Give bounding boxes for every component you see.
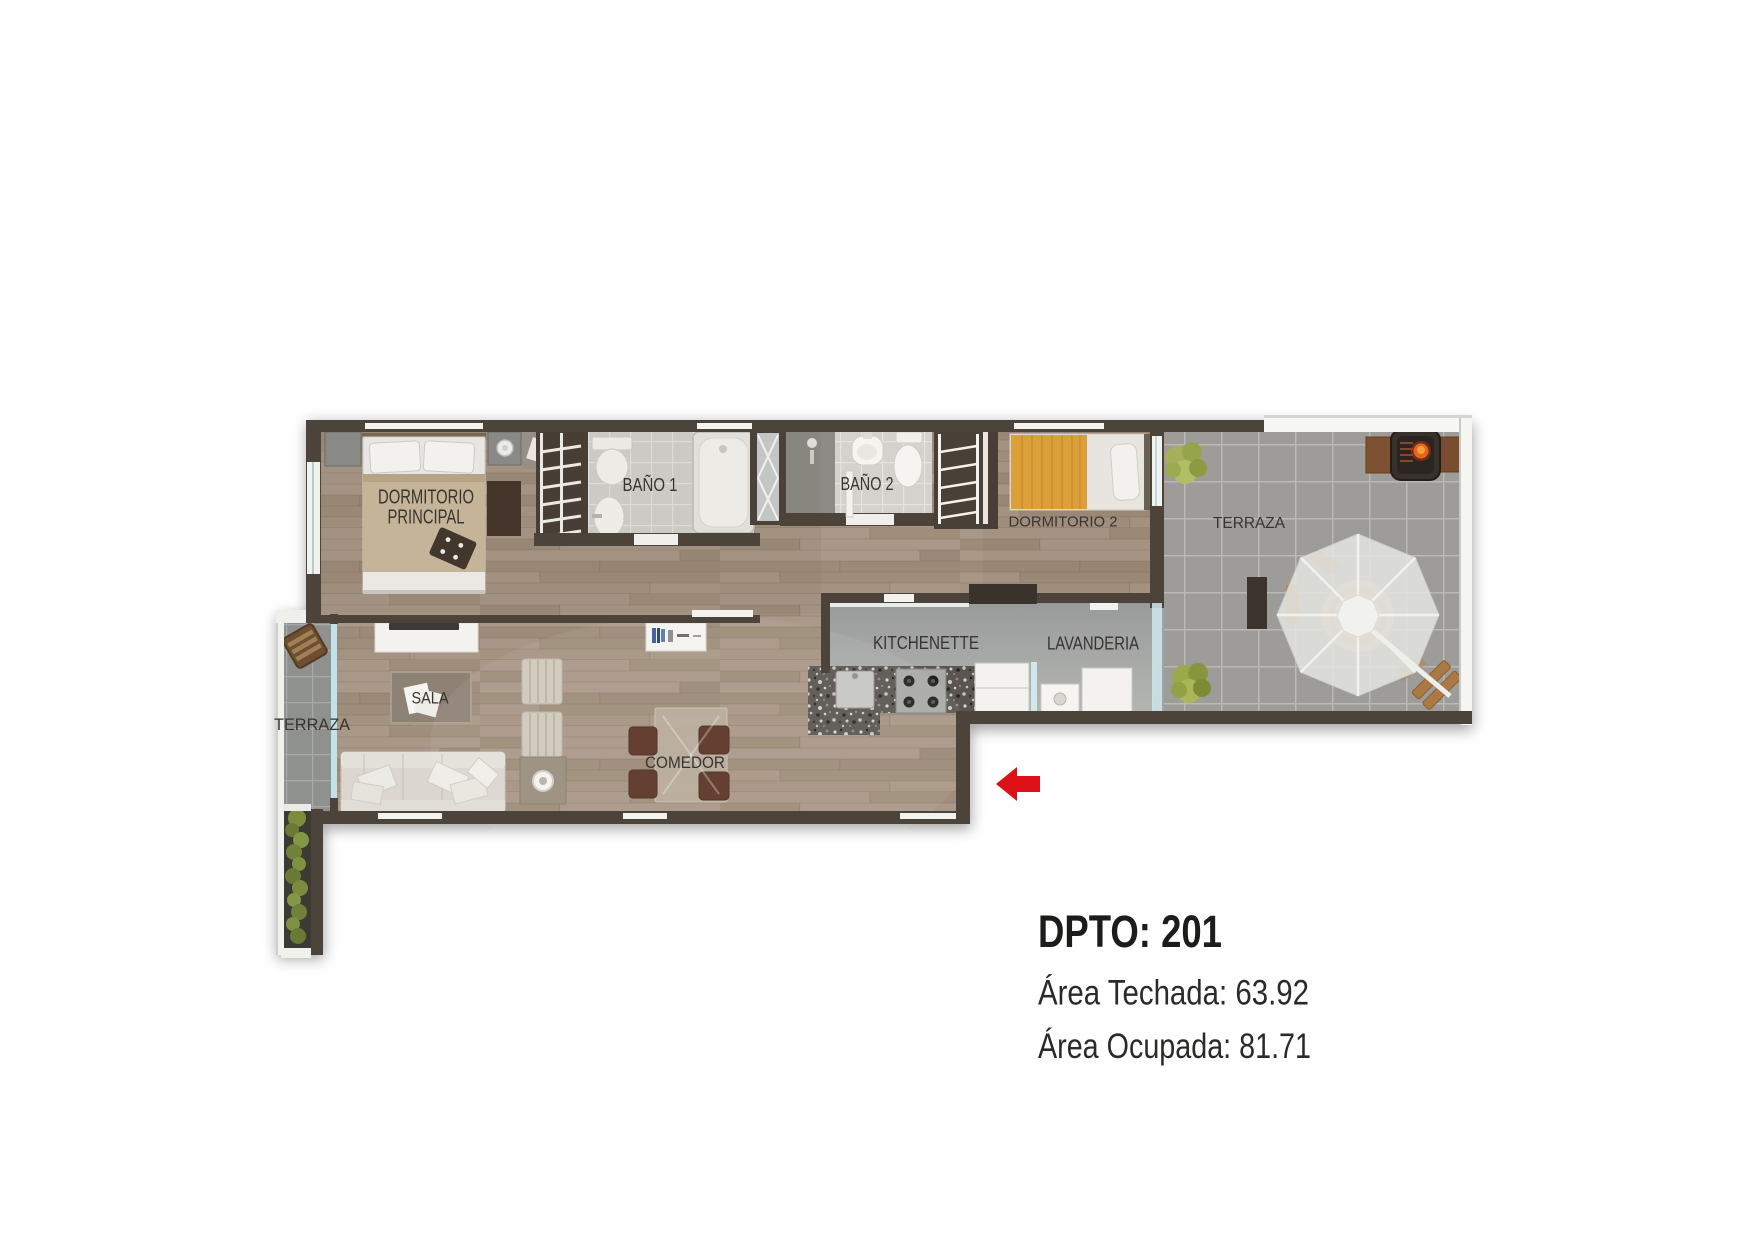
svg-text:Área Ocupada: 81.71: Área Ocupada: 81.71 (1038, 1027, 1311, 1066)
svg-text:SALA: SALA (412, 689, 450, 708)
svg-text:DPTO: 201: DPTO: 201 (1038, 906, 1222, 957)
svg-text:BAÑO 1: BAÑO 1 (623, 474, 678, 495)
svg-text:DORMITORIO: DORMITORIO (378, 487, 474, 509)
svg-text:LAVANDERIA: LAVANDERIA (1047, 634, 1139, 654)
svg-text:TERRAZA: TERRAZA (1213, 515, 1285, 532)
svg-text:BAÑO 2: BAÑO 2 (841, 473, 894, 494)
svg-text:DORMITORIO 2: DORMITORIO 2 (1009, 514, 1118, 531)
svg-text:KITCHENETTE: KITCHENETTE (873, 633, 979, 653)
svg-text:COMEDOR: COMEDOR (645, 754, 725, 772)
svg-text:TERRAZA: TERRAZA (274, 715, 351, 734)
svg-text:PRINCIPAL: PRINCIPAL (388, 507, 465, 529)
svg-text:Área Techada: 63.92: Área Techada: 63.92 (1038, 974, 1309, 1013)
